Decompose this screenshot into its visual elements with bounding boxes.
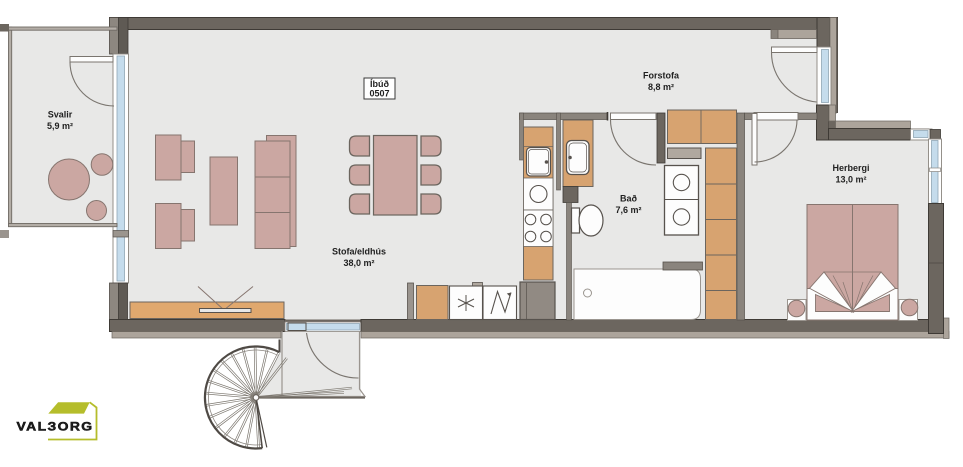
svg-text:Forstofa: Forstofa bbox=[643, 71, 680, 81]
svg-text:13,0 m²: 13,0 m² bbox=[835, 175, 866, 185]
svg-text:8,8 m²: 8,8 m² bbox=[648, 82, 674, 92]
svg-text:Herbergi: Herbergi bbox=[832, 163, 869, 173]
svg-text:38,0 m²: 38,0 m² bbox=[343, 258, 374, 268]
svg-text:Bað: Bað bbox=[620, 194, 638, 204]
svg-text:Íbúð: Íbúð bbox=[370, 79, 389, 89]
svg-text:0507: 0507 bbox=[369, 89, 389, 99]
svg-text:5,9 m²: 5,9 m² bbox=[47, 121, 73, 131]
svg-text:Svalir: Svalir bbox=[48, 110, 73, 120]
svg-text:VALЗORG: VALЗORG bbox=[17, 420, 94, 434]
svg-text:7,6 m²: 7,6 m² bbox=[615, 205, 641, 215]
svg-text:Stofa/eldhús: Stofa/eldhús bbox=[332, 247, 386, 257]
